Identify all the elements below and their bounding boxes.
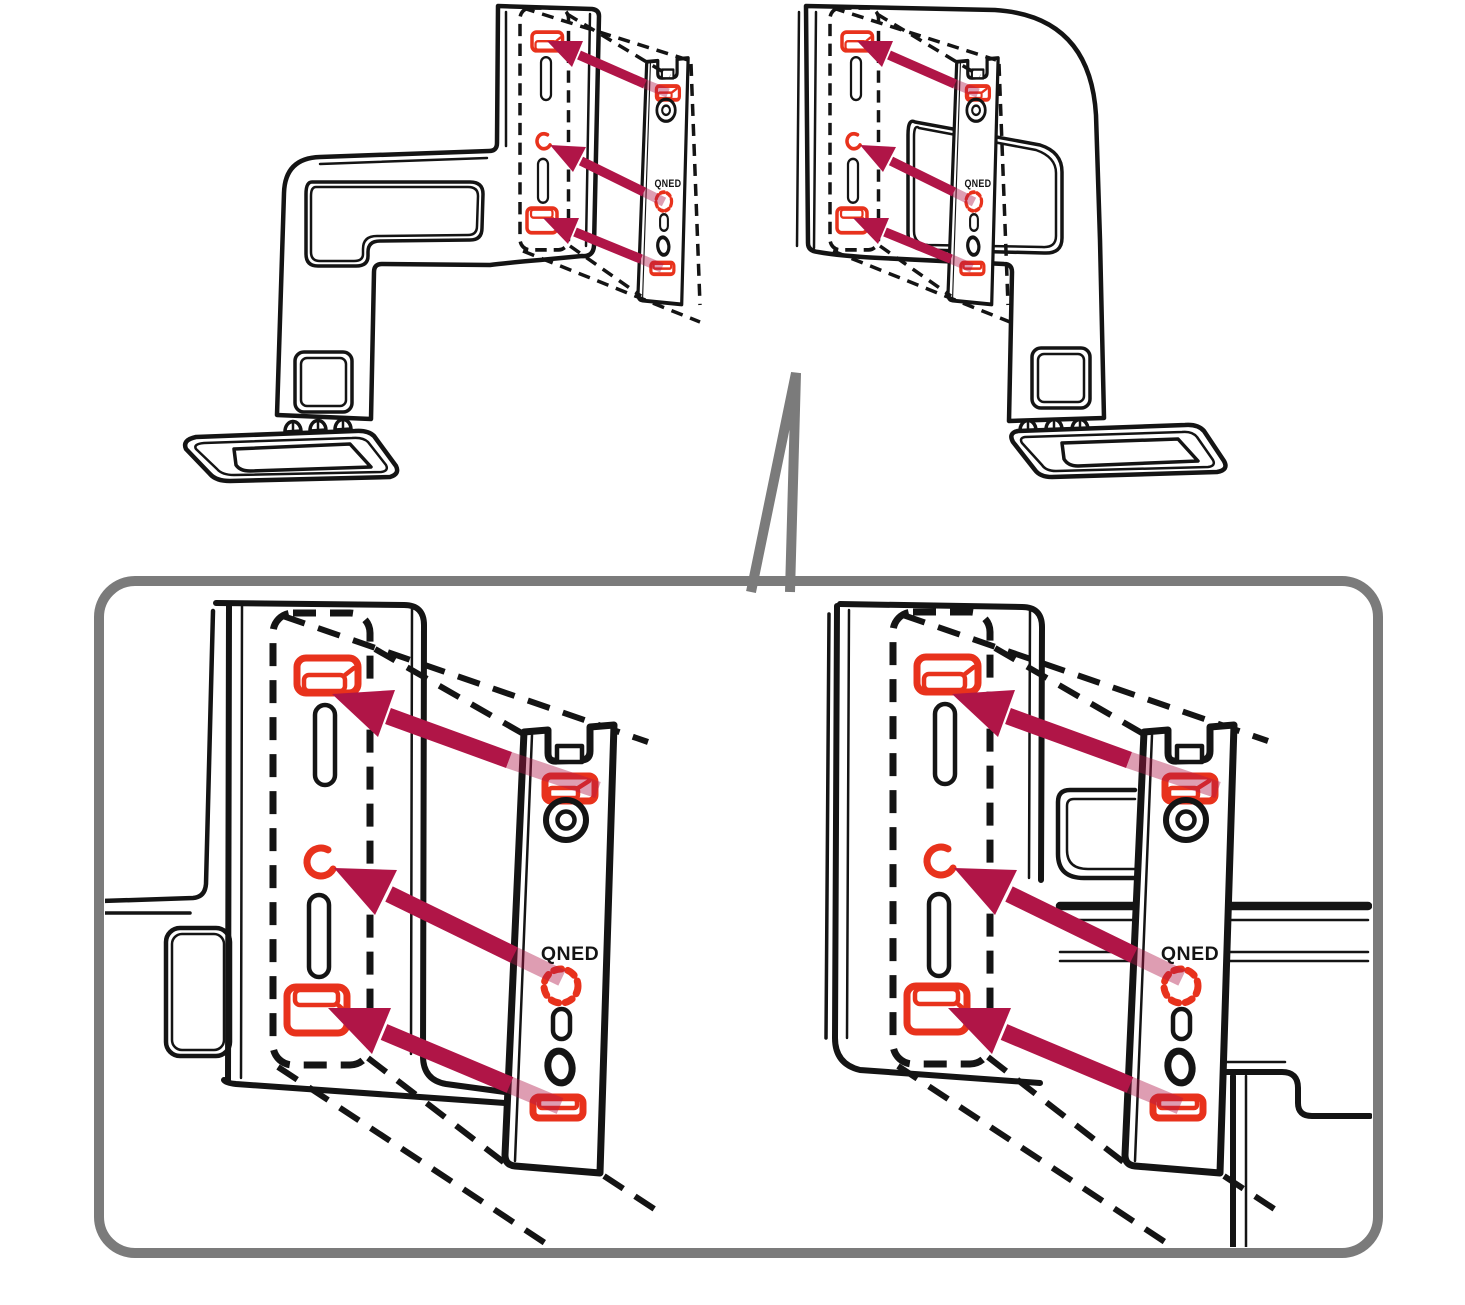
- detail-view-left: [103, 603, 662, 1243]
- projection-line: [604, 1176, 662, 1214]
- assembly-diagram: QNED: [0, 0, 1465, 1305]
- stand-base-plate: [1011, 425, 1225, 477]
- stand-base-plate: [185, 431, 397, 481]
- mount-overlay-detail-left: [273, 613, 370, 1065]
- mount-overlay-detail-right: [893, 612, 990, 1064]
- callout-pointer: [751, 373, 796, 592]
- assembly-top-left: [185, 6, 700, 481]
- stand-left-body: [185, 6, 599, 481]
- stand-right-magnified-edges: [826, 604, 1370, 1250]
- assembly-diagram-page: QNED: [0, 0, 1465, 1305]
- detail-view-right: [826, 604, 1370, 1250]
- assembly-top-right: [797, 6, 1225, 477]
